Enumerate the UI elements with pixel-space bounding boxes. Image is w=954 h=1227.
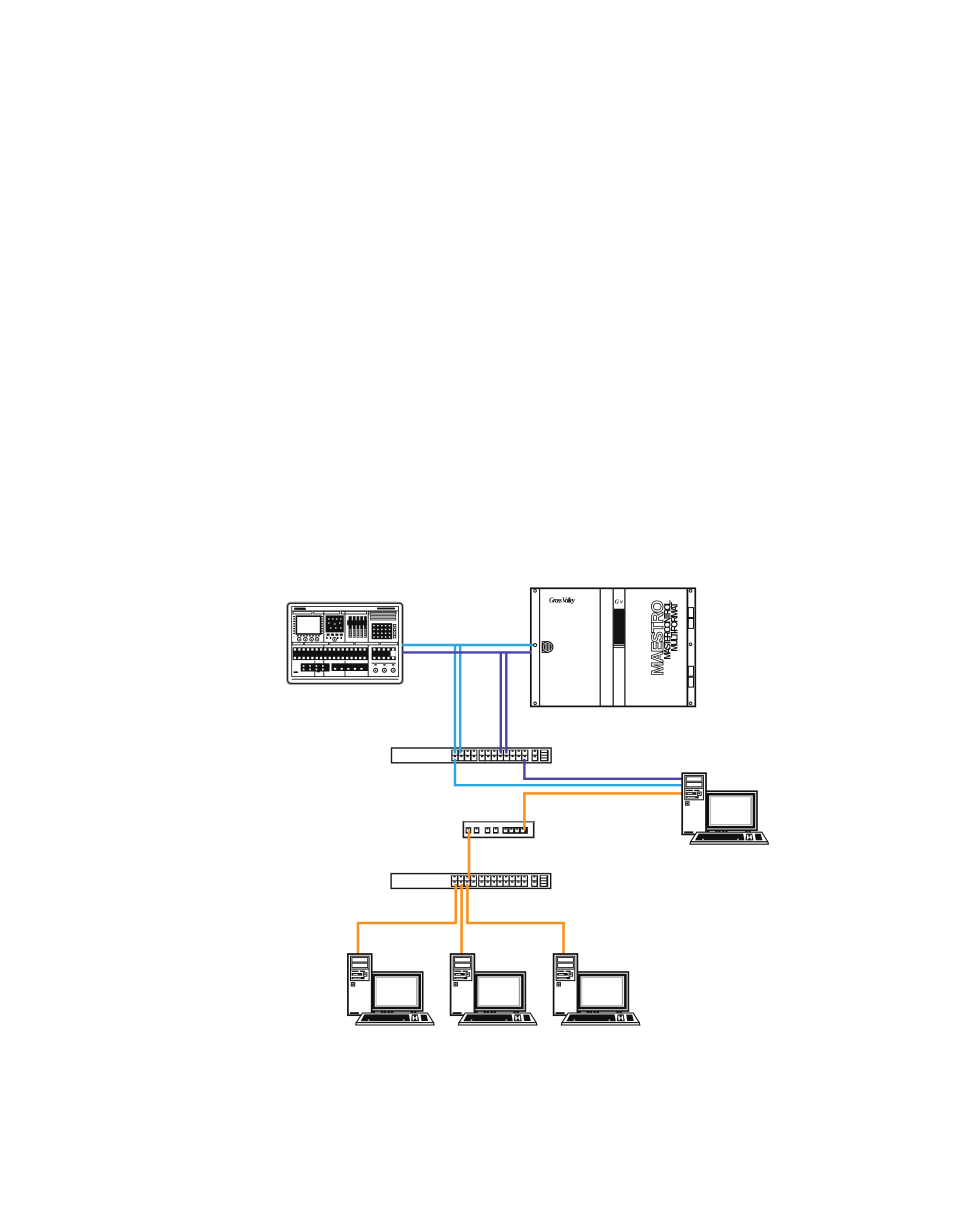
svg-text:MULTI-FORMAT: MULTI-FORMAT xyxy=(670,602,680,652)
svg-text:Gv: Gv xyxy=(615,600,623,606)
svg-text:Grass Valley: Grass Valley xyxy=(549,597,576,605)
